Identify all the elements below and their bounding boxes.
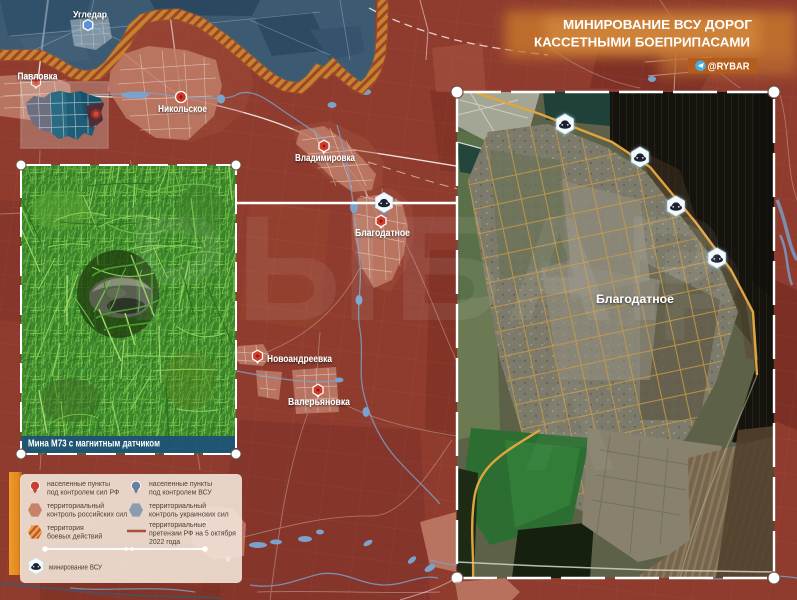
svg-text:КАССЕТНЫМИ БОЕПРИПАСАМИ: КАССЕТНЫМИ БОЕПРИПАСАМИ bbox=[534, 35, 750, 50]
svg-text:контроль украинских сил: контроль украинских сил bbox=[149, 512, 229, 519]
svg-text:боевых действий: боевых действий bbox=[47, 533, 102, 541]
svg-text:претензии РФ на 5 октября: претензии РФ на 5 октября bbox=[149, 530, 236, 538]
svg-text:территориальные: территориальные bbox=[149, 522, 206, 529]
svg-text:А: А bbox=[523, 352, 617, 498]
svg-text:РЫБАР: РЫБАР bbox=[126, 184, 733, 352]
svg-text:населенные пункты: населенные пункты bbox=[149, 481, 212, 488]
svg-text:Валерьяновка: Валерьяновка bbox=[288, 397, 350, 408]
svg-text:территория: территория bbox=[47, 525, 84, 532]
svg-text:МИНИРОВАНИЕ ВСУ ДОРОГ: МИНИРОВАНИЕ ВСУ ДОРОГ bbox=[563, 17, 753, 32]
svg-text:@RYBAR: @RYBAR bbox=[708, 62, 750, 73]
svg-text:контроль российских сил: контроль российских сил bbox=[47, 511, 127, 519]
svg-text:Павловка: Павловка bbox=[18, 72, 58, 83]
svg-text:территориальный: территориальный bbox=[47, 502, 104, 510]
svg-text:Новоандреевка: Новоандреевка bbox=[267, 354, 332, 365]
svg-text:Угледар: Угледар bbox=[73, 10, 107, 21]
svg-text:территориальный: территориальный bbox=[149, 502, 206, 510]
svg-text:Никольское: Никольское bbox=[158, 104, 207, 115]
svg-text:2022 года: 2022 года bbox=[149, 539, 180, 546]
svg-text:Владимировка: Владимировка bbox=[295, 153, 355, 164]
svg-text:Мина М73 с магнитным датчиком: Мина М73 с магнитным датчиком bbox=[28, 439, 160, 450]
svg-text:населенные пункты: населенные пункты bbox=[47, 481, 110, 488]
svg-text:под контролем ВСУ: под контролем ВСУ bbox=[149, 490, 212, 497]
svg-text:под контролем сил РФ: под контролем сил РФ bbox=[47, 490, 119, 497]
svg-text:минирование ВСУ: минирование ВСУ bbox=[49, 563, 102, 572]
